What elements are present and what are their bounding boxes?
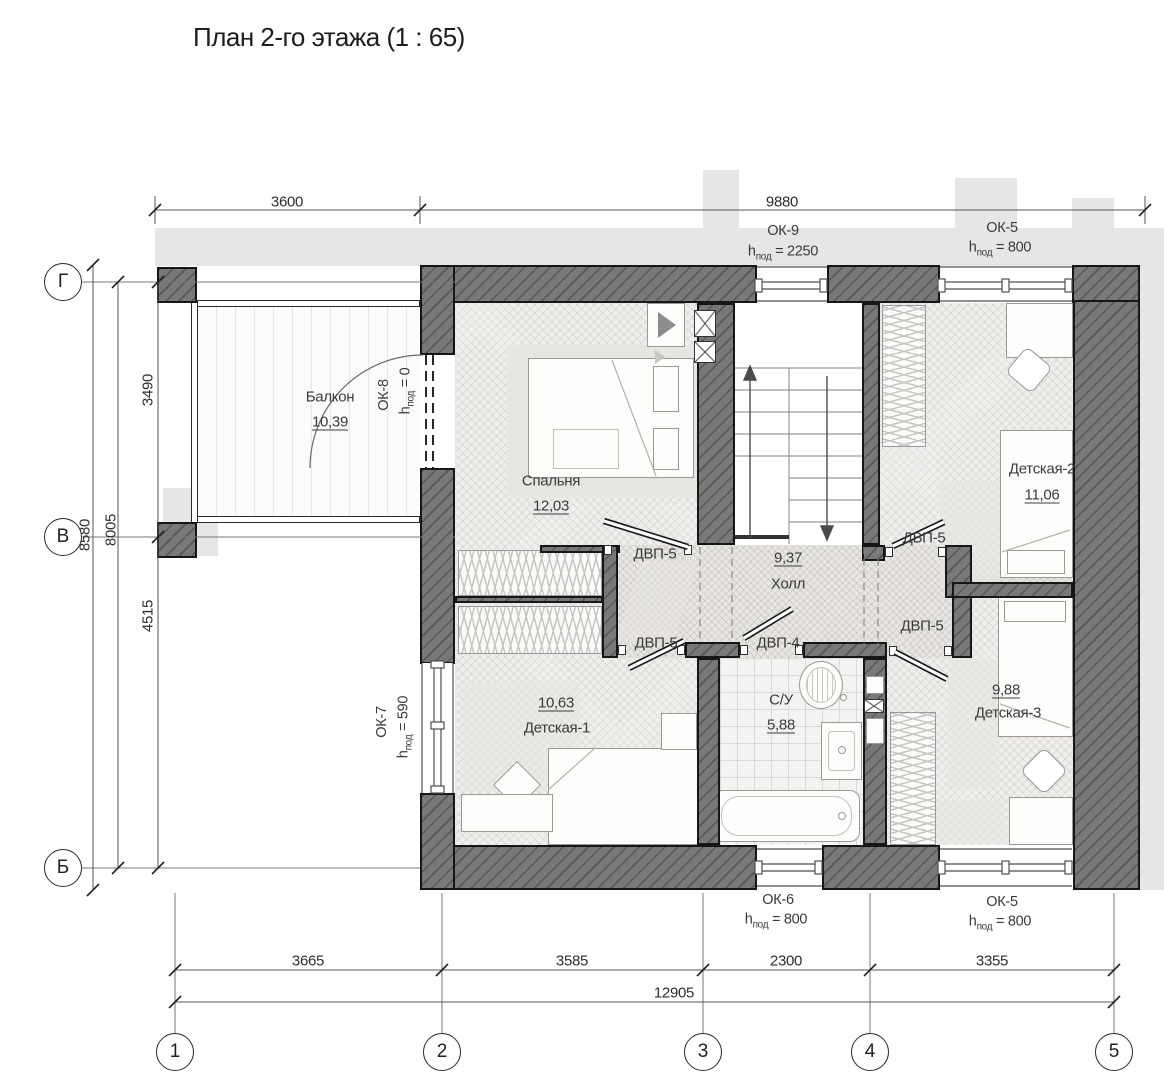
window-label: ОК-9	[767, 223, 798, 239]
room-area: 9,37	[774, 550, 802, 567]
room-name: Спальня	[522, 473, 580, 490]
room-area: 10,39	[312, 414, 348, 431]
floor-plan-drawing: План 2-го этажа (1 : 65)	[0, 0, 1164, 1080]
axis-col-marker: 1	[156, 1033, 194, 1071]
door-label: ДВП-5	[634, 546, 677, 563]
dim-label: 3585	[556, 953, 588, 970]
window-sill-label: hпод = 800	[969, 914, 1031, 933]
room-name: С/У	[769, 692, 793, 709]
dim-label: 8005	[103, 514, 120, 546]
door-label: ДВП-5	[903, 530, 946, 547]
room-name: Детская-3	[975, 705, 1041, 722]
door-label: ДВП-5	[901, 618, 944, 635]
window-label: ОК-6	[762, 892, 793, 908]
window-label: ОК-5	[986, 220, 1017, 236]
window-label: ОК-7	[374, 706, 390, 737]
door-label: ДВП-4	[757, 635, 800, 652]
dim-label: 9880	[766, 194, 798, 211]
room-area: 11,06	[1025, 487, 1060, 504]
dim-label: 12905	[654, 985, 694, 1002]
dim-label: 3490	[140, 374, 157, 406]
dim-label: 2300	[770, 953, 802, 970]
window-sill-label: hпод = 590	[396, 696, 415, 758]
room-area: 5,88	[767, 717, 795, 734]
window-frames	[422, 267, 1072, 886]
dimension-ticks	[87, 204, 1151, 1008]
axis-col-marker: 3	[684, 1033, 722, 1071]
window-sill-label: hпод = 2250	[748, 244, 818, 263]
stairs	[735, 368, 862, 544]
dim-label: 3600	[271, 194, 303, 211]
axis-col-marker: 5	[1095, 1033, 1133, 1071]
window-sill-label: hпод = 0	[398, 368, 417, 415]
window-label: ОК-8	[376, 379, 392, 410]
axis-lines	[82, 282, 1114, 1033]
room-area: 10,63	[538, 695, 574, 712]
window-label: ОК-5	[986, 894, 1017, 910]
window-sill-label: hпод = 800	[969, 240, 1031, 259]
room-name: Балкон	[306, 389, 355, 406]
dim-label: 3355	[976, 953, 1008, 970]
room-name: Холл	[771, 576, 805, 593]
dim-label: 3665	[292, 953, 324, 970]
dim-label: 4515	[140, 600, 157, 632]
axis-col-marker: 4	[851, 1033, 889, 1071]
axis-row-marker: Г	[44, 263, 82, 301]
room-area: 12,03	[533, 498, 569, 515]
door-label: ДВП-5	[635, 635, 678, 652]
window-sill-label: hпод = 800	[745, 912, 807, 931]
axis-col-marker: 2	[423, 1033, 461, 1071]
axis-row-marker: Б	[44, 849, 82, 887]
blanket-lines	[548, 360, 1070, 790]
room-area: 9,88	[992, 682, 1020, 699]
room-name: Детская-2	[1009, 461, 1075, 478]
dimension-lines	[93, 196, 1145, 1002]
axis-row-marker: В	[44, 518, 82, 556]
room-name: Детская-1	[524, 720, 590, 737]
